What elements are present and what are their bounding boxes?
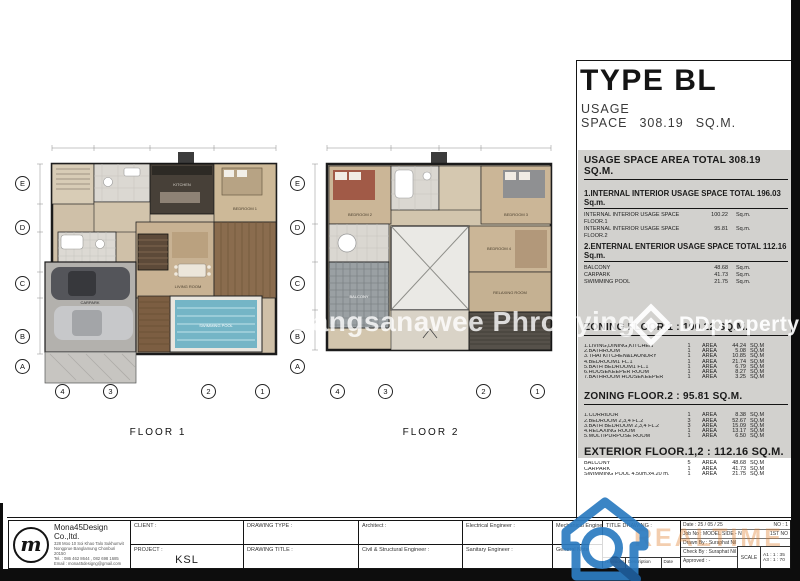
table-row: 7.BATHROOM HOUSEKEEPER1AREA3.25SQ.M [584,375,788,380]
table-row: SWIMMING POOL21.75Sq.m. [584,279,788,286]
table-row: 5.MULTIPURPOSE ROOM1AREA6.50SQ.M [584,434,788,439]
usage-total-heading: USAGE SPACE AREA TOTAL 308.19 SQ.M. [584,155,788,180]
project-label: PROJECT : [134,547,163,553]
floor2-bedroom2: BEDROOM 2 [329,166,391,224]
svg-text:BEDROOM 2: BEDROOM 2 [348,212,373,217]
sheet-divider-top [576,60,792,61]
ddproperty-watermark-text: DDproperty [679,313,800,337]
usage-space-unit: SQ.M. [696,116,736,130]
ddproperty-watermark: DDproperty [628,302,800,348]
company-logo: m [13,527,49,563]
grid-bubble-row: D [15,220,30,235]
svg-text:SWIMMING POOL: SWIMMING POOL [199,323,233,328]
company-address-2: Nongprue Banglamung Chonburi 20150 [54,546,126,556]
electrical-engineer-label: Electrical Engineer : [463,521,552,545]
floor1-stair-core [138,234,168,270]
grid-bubble-col: 4 [330,384,345,399]
usage-space-label: USAGE SPACE [581,102,630,130]
floor2-bathroom2 [329,224,389,262]
sheet-border-right [791,0,800,581]
zoning-floor2-rows: 1.CORRIDOR1AREA8.38SQ.M 2.BEDROOM 2,3,4 … [584,413,788,439]
drawing-sheet: TYPE BL USAGE SPACE308.19SQ.M. USAGE SPA… [0,0,800,581]
grid-bubble-col: 3 [103,384,118,399]
drawing-type-title-cell: DRAWING TYPE : DRAWING TITLE : [244,521,359,568]
grid-bubble-row: A [15,359,30,374]
grid-bubble-col: 2 [476,384,491,399]
floor1-pool: SWIMMING POOL [170,296,262,352]
grid-bubble-row: B [15,329,30,344]
table-row: CARPARK41.73Sq.m. [584,272,788,279]
usage-space-line: USAGE SPACE308.19SQ.M. [581,102,800,130]
roof-vent [178,152,194,164]
floor2-plan: BEDROOM 2 BEDROOM 3 BEDROOM 4 [303,138,561,393]
company-cell: m Mona45Design Co.,ltd. 328 Moo 10 Soi K… [9,521,131,568]
internal-heading: 1.INTERNAL INTERIOR USAGE SPACE TOTAL 19… [584,189,788,209]
svg-text:KITCHEN: KITCHEN [173,182,191,187]
page-title: TYPE BL [580,64,717,98]
floor1-deck [138,296,170,352]
client-label: CLIENT : [131,521,243,545]
floor1-garage: CARPARK [45,262,136,352]
floor1-kitchen: KITCHEN [150,164,214,214]
floor1-entry-stair [52,164,94,204]
client-project-cell: CLIENT : PROJECT : KSL [131,521,244,568]
floor1-bathroom [94,164,150,202]
grid-bubble-col: 4 [55,384,70,399]
sheet-border-bottom [0,569,800,581]
project-value: KSL [134,554,240,566]
usage-space-value: 308.19 [639,116,683,130]
grid-bubble-row: E [15,176,30,191]
architect-label: Architect : [359,521,462,545]
scale-a3: A3 : 1 : 70 [763,558,790,563]
sheet-divider-vertical [576,60,577,520]
exterior-heading: EXTERIOR FLOOR.1,2 : 112.16 SQ.M. [584,446,788,458]
agent-watermark: Bangsanawee Phrohying [292,306,635,338]
company-address-1: 328 Moo 10 Soi Khao Talo Sukhumvit [54,541,126,546]
company-email: Email : mona45designg@gmail.com [54,561,126,566]
floor1-plan: KITCHEN BEDROOM 1 LIVING ROOM [28,138,286,393]
svg-text:RELAXING ROOM: RELAXING ROOM [493,290,527,295]
date-col-label: Date [662,558,680,568]
floor1-driveway [45,352,136,383]
house-magnifier-logo [556,496,654,581]
floor1-label: FLOOR 1 [113,427,203,438]
sheet-border-left [0,503,3,581]
grid-bubble-col: 1 [255,384,270,399]
grid-bubble-row: C [290,276,305,291]
svg-text:LIVING ROOM: LIVING ROOM [175,284,202,289]
architect-cell: Architect : Civil & Structural Engineer … [359,521,463,568]
svg-text:BEDROOM 3: BEDROOM 3 [504,212,529,217]
floor2-label: FLOOR 2 [386,427,476,438]
floor1-bedroom1: BEDROOM 1 [214,164,276,222]
table-row: SWIMMING POOL 4.50m.x4.20 m.1AREA21.75SQ… [584,472,788,477]
external-heading: 2.ENTERNAL ENTERIOR USAGE SPACE TOTAL 11… [584,242,788,262]
table-row: INTERNAL INTERIOR USAGE SPACE FLOOR.295.… [584,226,788,240]
floor2-void-skylight [391,226,469,310]
grid-bubble-col: 2 [201,384,216,399]
grid-bubble-row: D [290,220,305,235]
grid-bubble-row: E [290,176,305,191]
drawing-type-label: DRAWING TYPE : [244,521,358,545]
bottom-brand-watermark: REALTIME [634,524,784,553]
grid-bubble-col: 1 [530,384,545,399]
floor2-bathroom3 [391,166,439,210]
drawing-title-label: DRAWING TITLE : [244,545,358,569]
floor2-bedroom4: BEDROOM 4 [469,226,551,272]
grid-bubble-row: C [15,276,30,291]
svg-text:BEDROOM 1: BEDROOM 1 [233,206,258,211]
internal-rows: INTERNAL INTERIOR USAGE SPACE FLOOR.1100… [584,212,788,240]
external-rows: BALCONY48.68Sq.m. CARPARK41.73Sq.m. SWIM… [584,265,788,286]
roof-vent [431,152,447,164]
sanitary-engineer-label: Sanitary Engineer : [463,545,552,569]
exterior-rows: BALCONY5AREA48.68SQ.M CARPARK1AREA41.73S… [584,461,788,477]
zoning-floor1-rows: 1.LIVING,DINING,KITCHEN1AREA44.24SQ.M 2.… [584,344,788,380]
electrical-cell: Electrical Engineer : Sanitary Engineer … [463,521,553,568]
grid-bubble-col: 3 [378,384,393,399]
svg-text:CARPARK: CARPARK [80,300,99,305]
zoning-floor2-heading: ZONING FLOOR.2 : 95.81 SQ.M. [584,391,788,405]
floor2-corridor [439,166,481,210]
table-row: BALCONY48.68Sq.m. [584,265,788,272]
svg-text:BEDROOM 4: BEDROOM 4 [487,246,512,251]
table-row: INTERNAL INTERIOR USAGE SPACE FLOOR.1100… [584,212,788,226]
ddproperty-logo-icon [628,302,674,348]
grid-bubble-row: A [290,359,305,374]
svg-text:BALCONY: BALCONY [349,294,368,299]
floor1-terrace [214,222,276,298]
company-name: Mona45Design Co.,ltd. [54,523,126,541]
civil-engineer-label: Civil & Structural Engineer : [359,545,462,569]
floor2-bedroom3: BEDROOM 3 [481,166,551,224]
